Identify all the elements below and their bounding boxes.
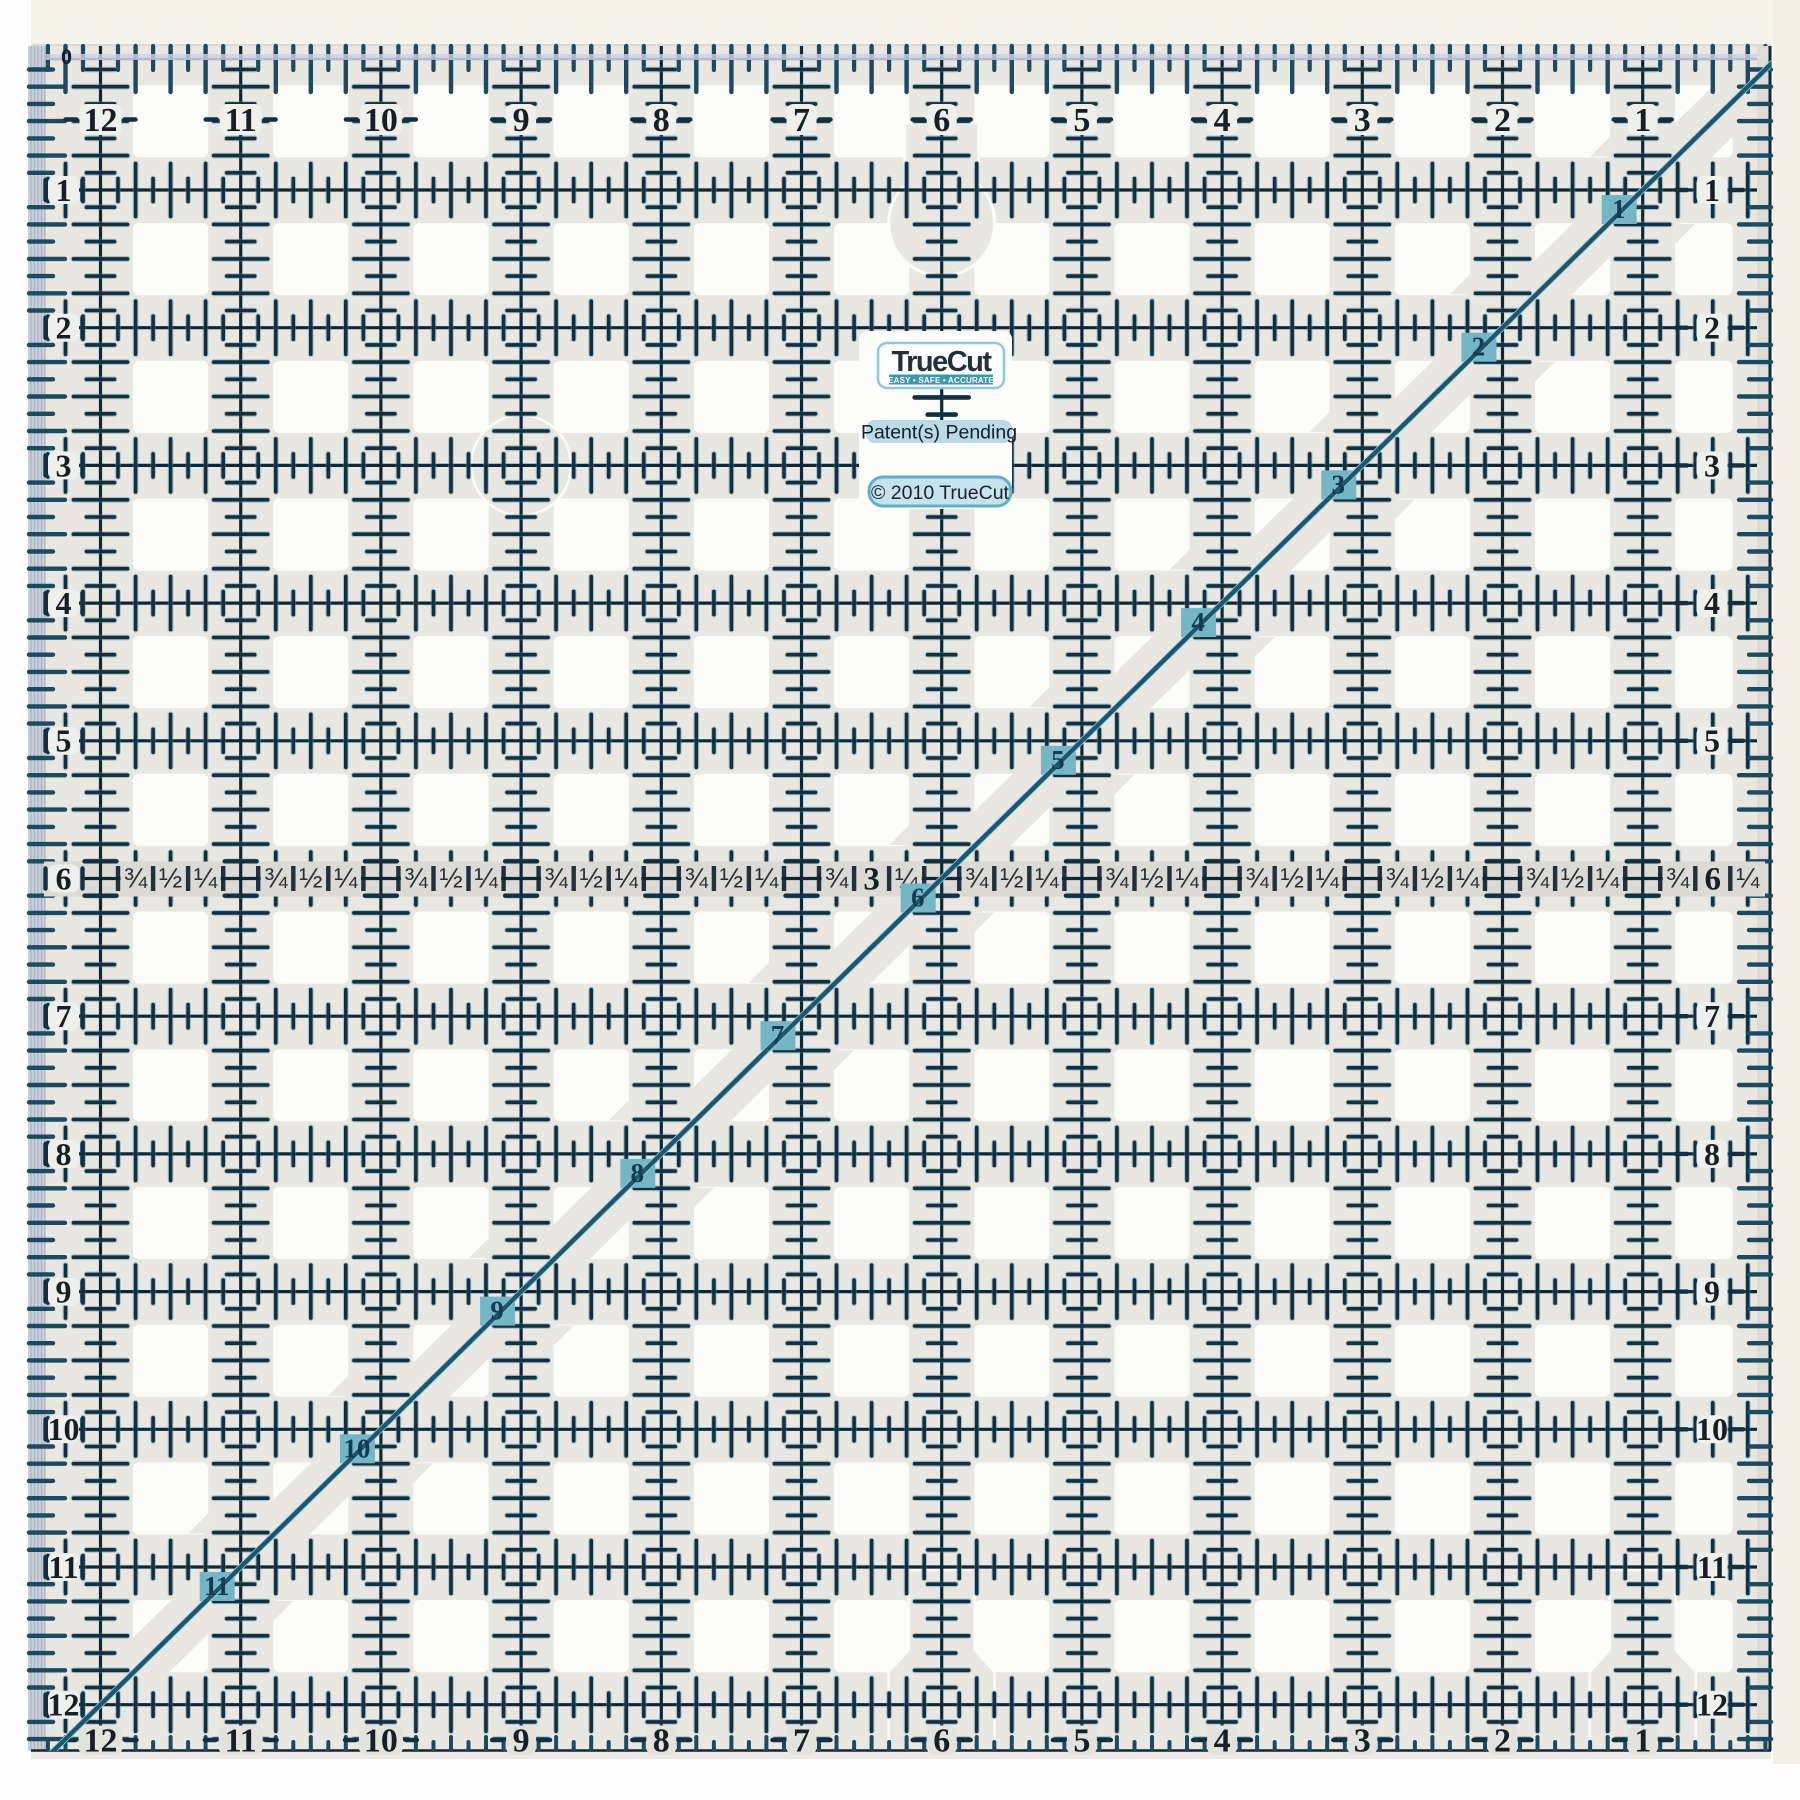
svg-text:4: 4 [56, 585, 72, 621]
svg-text:¾: ¾ [544, 863, 568, 894]
svg-text:¾: ¾ [685, 863, 709, 894]
svg-text:10: 10 [48, 1411, 80, 1447]
svg-text:¼: ¼ [1175, 863, 1199, 894]
svg-text:½: ½ [1000, 863, 1023, 894]
svg-text:¼: ¼ [755, 863, 779, 894]
svg-text:8: 8 [653, 1723, 670, 1760]
svg-text:½: ½ [159, 863, 182, 894]
svg-text:1: 1 [56, 172, 72, 208]
svg-text:11: 11 [204, 1571, 230, 1601]
svg-text:¾: ¾ [404, 863, 428, 894]
svg-text:¾: ¾ [965, 863, 989, 894]
svg-text:10: 10 [1696, 1411, 1728, 1447]
svg-text:6: 6 [56, 860, 72, 896]
svg-text:4: 4 [1704, 585, 1720, 621]
svg-text:2: 2 [1494, 1723, 1511, 1760]
svg-text:¼: ¼ [1035, 863, 1059, 894]
svg-text:8: 8 [631, 1158, 645, 1188]
svg-text:½: ½ [580, 863, 603, 894]
svg-text:1: 1 [1634, 1723, 1651, 1760]
svg-text:2: 2 [1472, 332, 1486, 362]
svg-text:3: 3 [1354, 102, 1371, 139]
svg-text:12: 12 [1696, 1687, 1728, 1723]
svg-text:¼: ¼ [474, 863, 498, 894]
svg-text:½: ½ [720, 863, 743, 894]
svg-text:2: 2 [56, 310, 72, 346]
svg-text:EASY • SAFE • ACCURATE: EASY • SAFE • ACCURATE [888, 376, 994, 385]
svg-text:5: 5 [56, 723, 72, 759]
svg-text:9: 9 [513, 102, 530, 139]
svg-text:5: 5 [1704, 723, 1720, 759]
svg-text:¼: ¼ [615, 863, 639, 894]
svg-text:½: ½ [1281, 863, 1304, 894]
svg-text:7: 7 [771, 1020, 785, 1050]
svg-text:5: 5 [1073, 1723, 1090, 1760]
svg-text:½: ½ [1421, 863, 1444, 894]
svg-text:4: 4 [1214, 1723, 1231, 1760]
svg-text:7: 7 [793, 102, 810, 139]
svg-text:12: 12 [84, 1723, 118, 1760]
svg-text:6: 6 [933, 1723, 950, 1760]
svg-text:¾: ¾ [264, 863, 288, 894]
svg-text:½: ½ [1561, 863, 1584, 894]
svg-text:8: 8 [1704, 1136, 1720, 1172]
svg-text:1: 1 [1704, 172, 1720, 208]
svg-text:9: 9 [490, 1296, 504, 1326]
svg-text:2: 2 [1494, 102, 1511, 139]
svg-text:3: 3 [863, 862, 880, 898]
svg-text:¾: ¾ [1245, 863, 1269, 894]
svg-text:7: 7 [793, 1723, 810, 1760]
svg-text:Patent(s) Pending: Patent(s) Pending [861, 422, 1017, 444]
svg-text:5: 5 [1051, 745, 1065, 775]
svg-text:4: 4 [1191, 607, 1205, 637]
svg-text:8: 8 [56, 1136, 72, 1172]
svg-text:8: 8 [653, 102, 670, 139]
svg-text:11: 11 [1697, 1549, 1727, 1585]
svg-text:6: 6 [1705, 862, 1722, 898]
svg-text:7: 7 [56, 998, 72, 1034]
svg-text:2: 2 [1704, 310, 1720, 346]
svg-text:¼: ¼ [1736, 863, 1760, 894]
svg-text:½: ½ [439, 863, 462, 894]
svg-text:9: 9 [1704, 1274, 1720, 1310]
svg-text:3: 3 [1332, 469, 1346, 499]
svg-text:11: 11 [225, 1723, 257, 1760]
svg-text:¾: ¾ [1666, 863, 1690, 894]
svg-text:½: ½ [299, 863, 322, 894]
svg-text:¼: ¼ [194, 863, 218, 894]
svg-text:1: 1 [1634, 102, 1651, 139]
svg-text:¾: ¾ [825, 863, 849, 894]
svg-text:6: 6 [911, 883, 925, 913]
svg-text:9: 9 [513, 1723, 530, 1760]
svg-text:12: 12 [48, 1687, 80, 1723]
svg-text:5: 5 [1073, 102, 1090, 139]
svg-text:6: 6 [933, 102, 950, 139]
svg-text:10: 10 [364, 1723, 398, 1760]
svg-text:10: 10 [343, 1433, 370, 1463]
svg-text:© 2010 TrueCut: © 2010 TrueCut [871, 482, 1010, 504]
svg-text:3: 3 [1354, 1723, 1371, 1760]
svg-text:¼: ¼ [1316, 863, 1340, 894]
svg-text:4: 4 [1214, 102, 1231, 139]
svg-text:7: 7 [1704, 998, 1720, 1034]
svg-text:3: 3 [56, 447, 72, 483]
svg-text:¾: ¾ [124, 863, 148, 894]
svg-text:1: 1 [1612, 194, 1626, 224]
svg-text:TrueCut: TrueCut [891, 346, 992, 378]
svg-text:10: 10 [364, 102, 398, 139]
svg-text:11: 11 [48, 1549, 78, 1585]
svg-text:9: 9 [56, 1274, 72, 1310]
svg-text:¾: ¾ [1526, 863, 1550, 894]
svg-text:½: ½ [1140, 863, 1163, 894]
svg-text:12: 12 [84, 102, 118, 139]
svg-text:¼: ¼ [334, 863, 358, 894]
svg-text:¾: ¾ [1386, 863, 1410, 894]
svg-text:0: 0 [61, 44, 72, 69]
svg-text:11: 11 [225, 102, 257, 139]
svg-text:¼: ¼ [1456, 863, 1480, 894]
svg-text:3: 3 [1704, 447, 1720, 483]
svg-text:¾: ¾ [1105, 863, 1129, 894]
svg-text:¼: ¼ [1596, 863, 1620, 894]
